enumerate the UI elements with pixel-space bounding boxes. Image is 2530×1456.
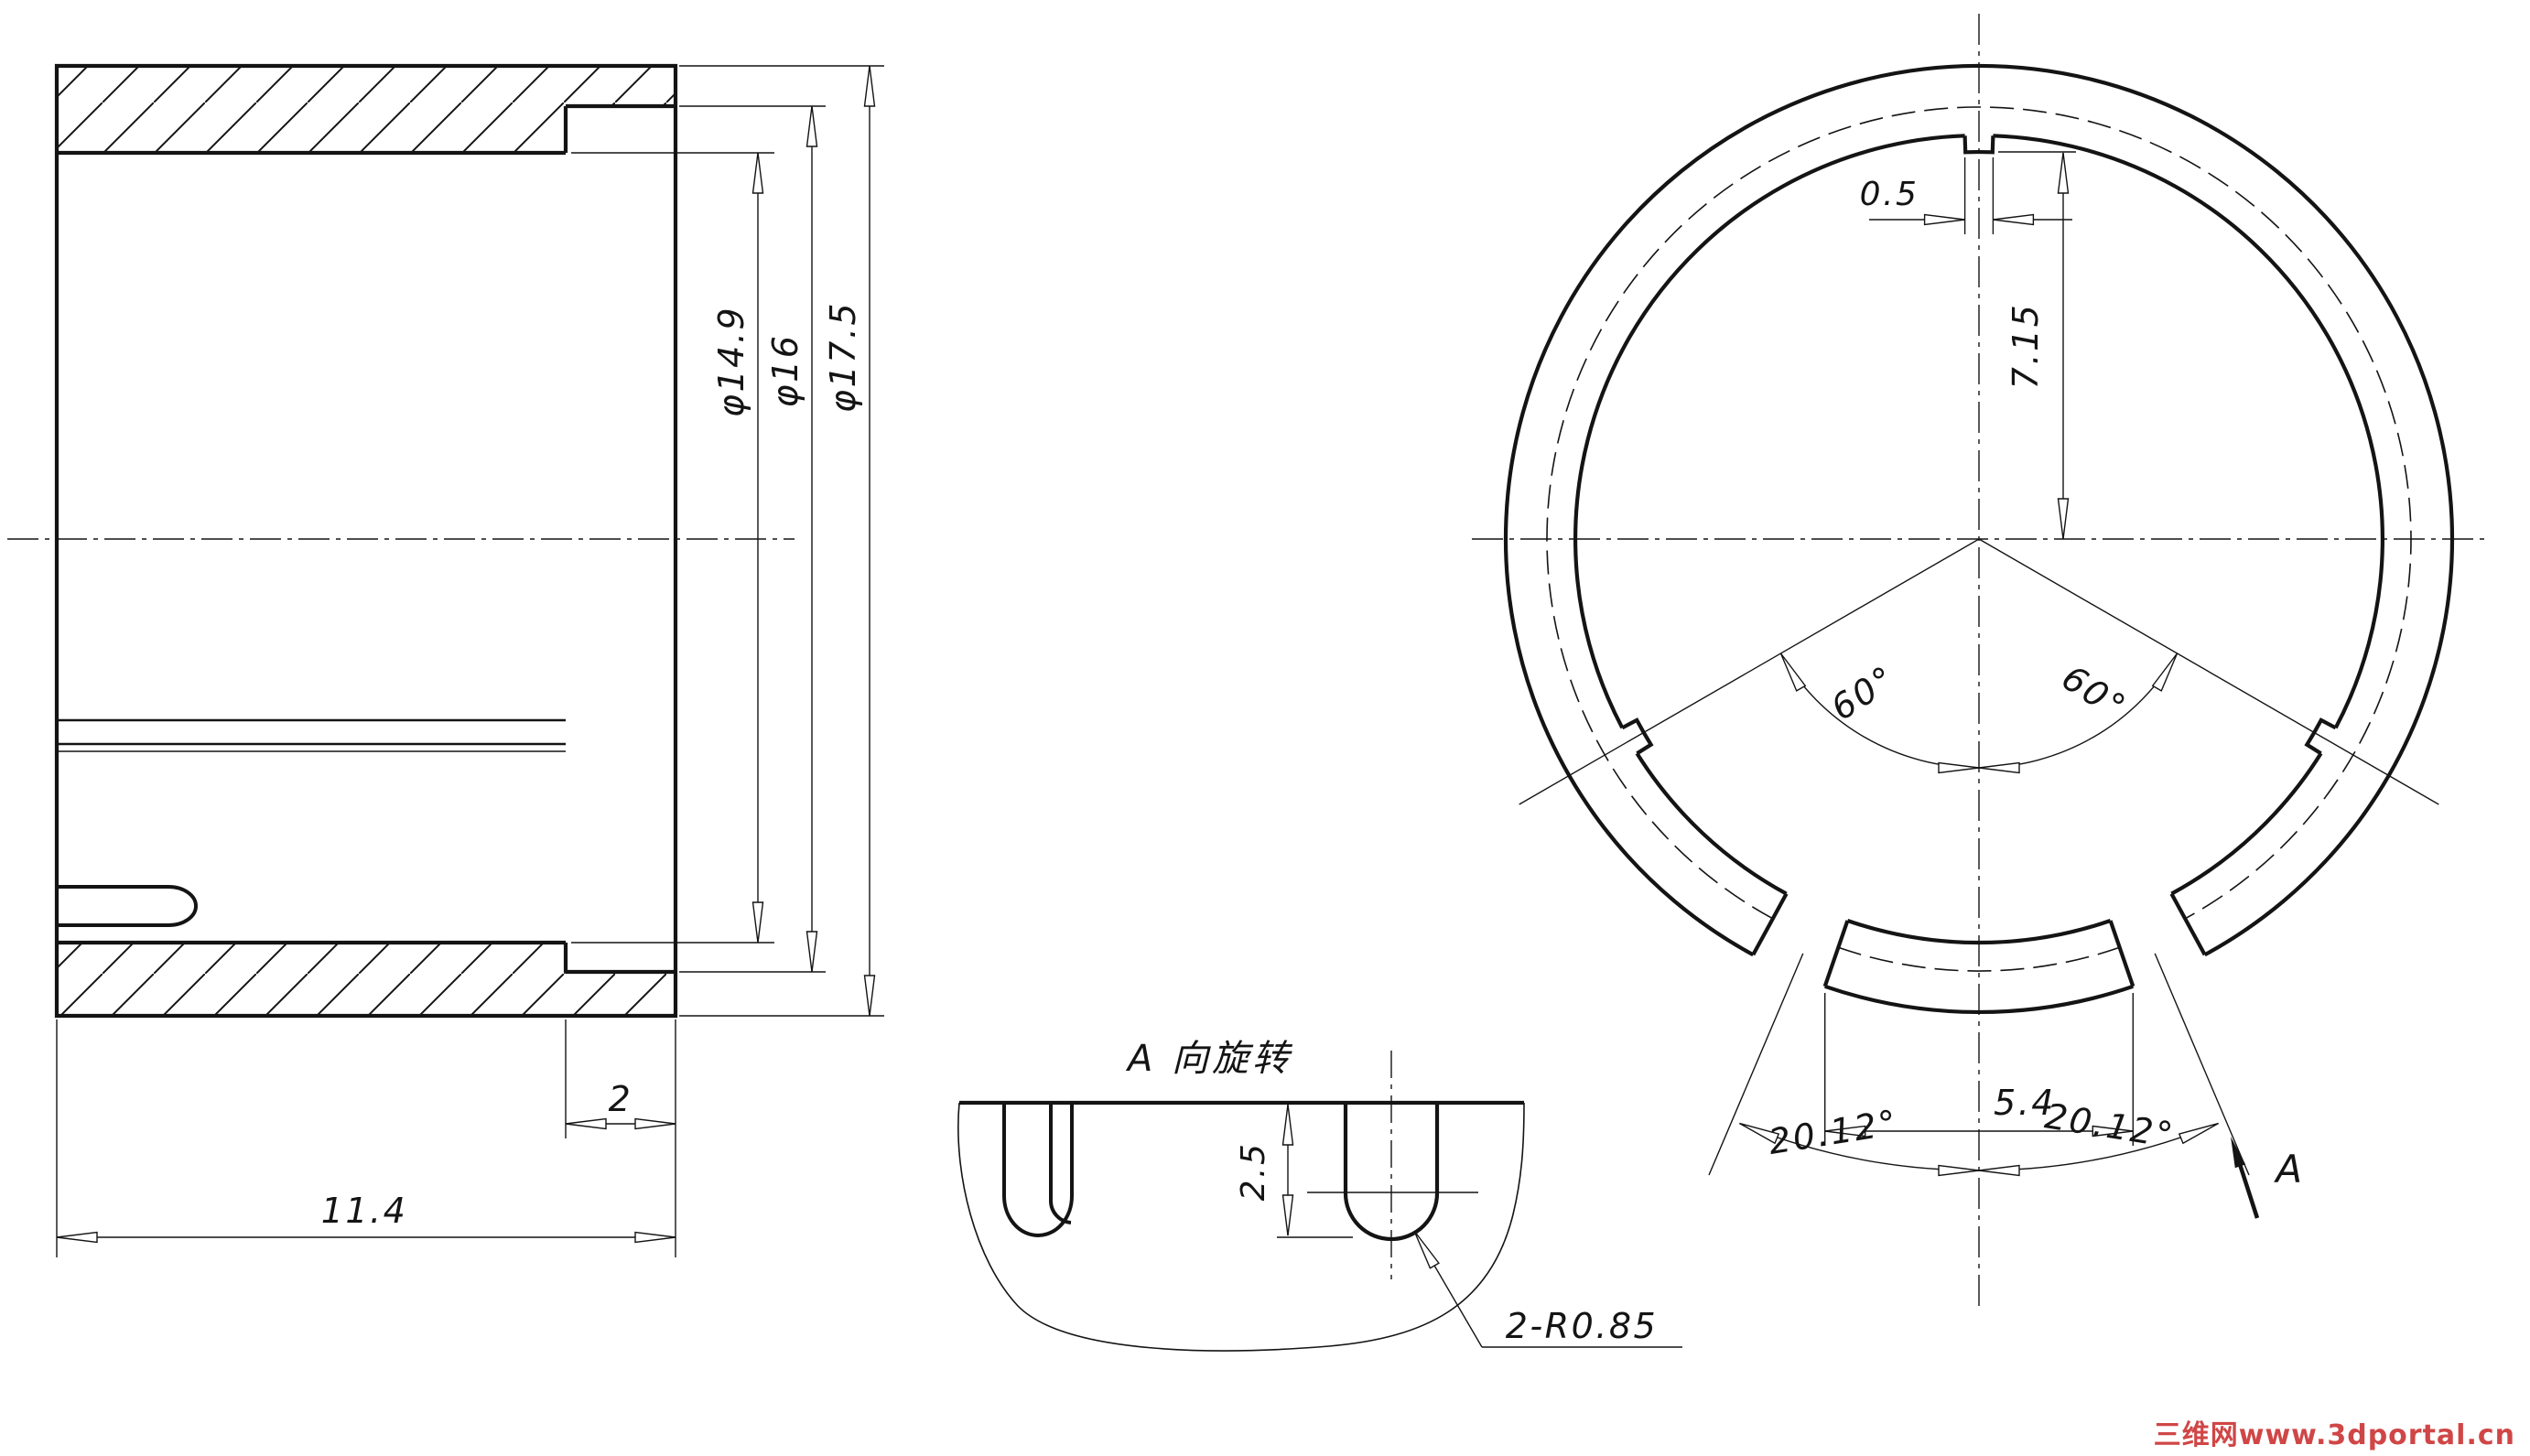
- dim-counterbore-diameter: φ16: [765, 334, 805, 408]
- radial-line-60-right: [1979, 539, 2438, 804]
- leader-slot-radius-arrow: [1414, 1231, 1482, 1347]
- dim-bore-diameter: φ14.9: [711, 306, 751, 417]
- end-view: 60° 60° 0.5 7.15 5.4 20.12° 20.12°: [1472, 14, 2488, 1307]
- slot-profile: [57, 887, 196, 925]
- detail-view: A 向旋转 2.5 2-R0.85: [958, 1038, 1682, 1351]
- dim-overall-length: 11.4: [321, 1191, 408, 1231]
- hatch-region-bottom: [57, 943, 676, 1016]
- engineering-drawing-canvas: 2 11.4 φ14.9 φ16 φ17.5 60° 60°: [0, 0, 2530, 1456]
- slot-right-edges: [2111, 894, 2205, 987]
- drawing-sheet: 2 11.4 φ14.9 φ16 φ17.5 60° 60°: [0, 0, 2530, 1456]
- detail-slot-left-inner: [1051, 1101, 1071, 1223]
- view-arrow-head: [2231, 1137, 2245, 1168]
- section-view: 2 11.4 φ14.9 φ16 φ17.5: [7, 66, 884, 1257]
- watermark: 三维网www.3dportal.cn: [2154, 1419, 2515, 1451]
- detail-view-title: A 向旋转: [1125, 1038, 1293, 1080]
- detail-break-boundary: [958, 1103, 1524, 1351]
- dim-slot-angle-right: 20.12°: [2042, 1095, 2178, 1156]
- dim-tab-radius: 7.15: [2006, 303, 2046, 390]
- dim-slot-depth: 2.5: [1235, 1142, 1272, 1202]
- dim-tab-width: 0.5: [1860, 176, 1919, 213]
- slot-left-edges: [1753, 894, 1847, 987]
- detail-slot-left-outer: [1004, 1101, 1072, 1235]
- hatch-region-top: [57, 66, 676, 153]
- dim-slot-radius: 2-R0.85: [1506, 1306, 1658, 1346]
- view-arrow-label: A: [2273, 1147, 2304, 1192]
- section-dim-lines: [57, 66, 884, 1257]
- dim-flange-width: 2: [609, 1079, 633, 1119]
- part-outline: [57, 66, 676, 1016]
- dim-outer-diameter: φ17.5: [823, 301, 863, 413]
- radial-line-60-left: [1519, 539, 1979, 804]
- view-direction-arrow: [2231, 1137, 2257, 1218]
